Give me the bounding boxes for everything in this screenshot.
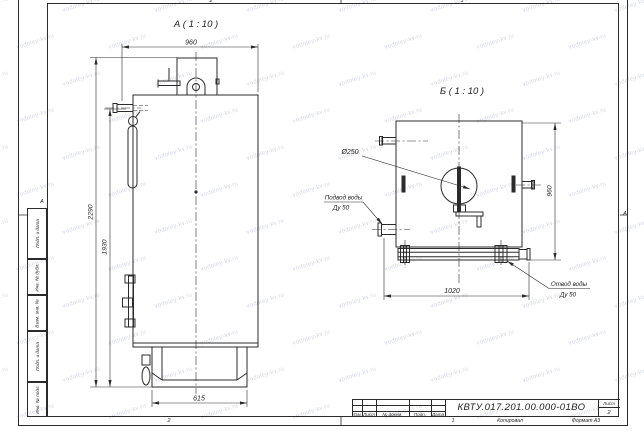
view-b-title: Б ( 1 : 10 ) <box>440 86 484 97</box>
drawing-linework: А ( 1 : 10 ) Б ( 1 : 10 ) 960 615 2290 1… <box>0 0 644 430</box>
dim-width-top: 960 <box>185 40 197 47</box>
view-a-boiler-side <box>113 58 258 387</box>
dimension-lines <box>90 44 561 407</box>
view-a-title: А ( 1 : 10 ) <box>173 19 218 30</box>
dim-height-total: 2290 <box>88 204 95 220</box>
inlet-label: Подвод воды <box>325 195 363 202</box>
outlet-size-label: Ду 50 <box>559 292 577 299</box>
inlet-size-label: Ду 50 <box>332 205 350 212</box>
drawing-texts: А ( 1 : 10 ) Б ( 1 : 10 ) 960 615 2290 1… <box>88 19 588 403</box>
dimension-arrows <box>94 45 556 404</box>
dim-width-bottom: 1020 <box>444 288 460 295</box>
zone-tick-marks <box>18 0 628 426</box>
flue-diameter-label: Ø250 <box>340 149 358 156</box>
outlet-label: Отвод воды <box>551 281 588 288</box>
dim-height-right: 960 <box>547 185 554 197</box>
dim-height-body: 1930 <box>102 239 109 254</box>
drawing-sheet: vodoley-kv.ruvodoley-kv.ruvodoley-kv.ruv… <box>0 0 644 430</box>
view-b-boiler-back <box>378 121 535 263</box>
sensor-port-dot <box>194 190 197 193</box>
dim-base-width: 615 <box>193 396 205 403</box>
